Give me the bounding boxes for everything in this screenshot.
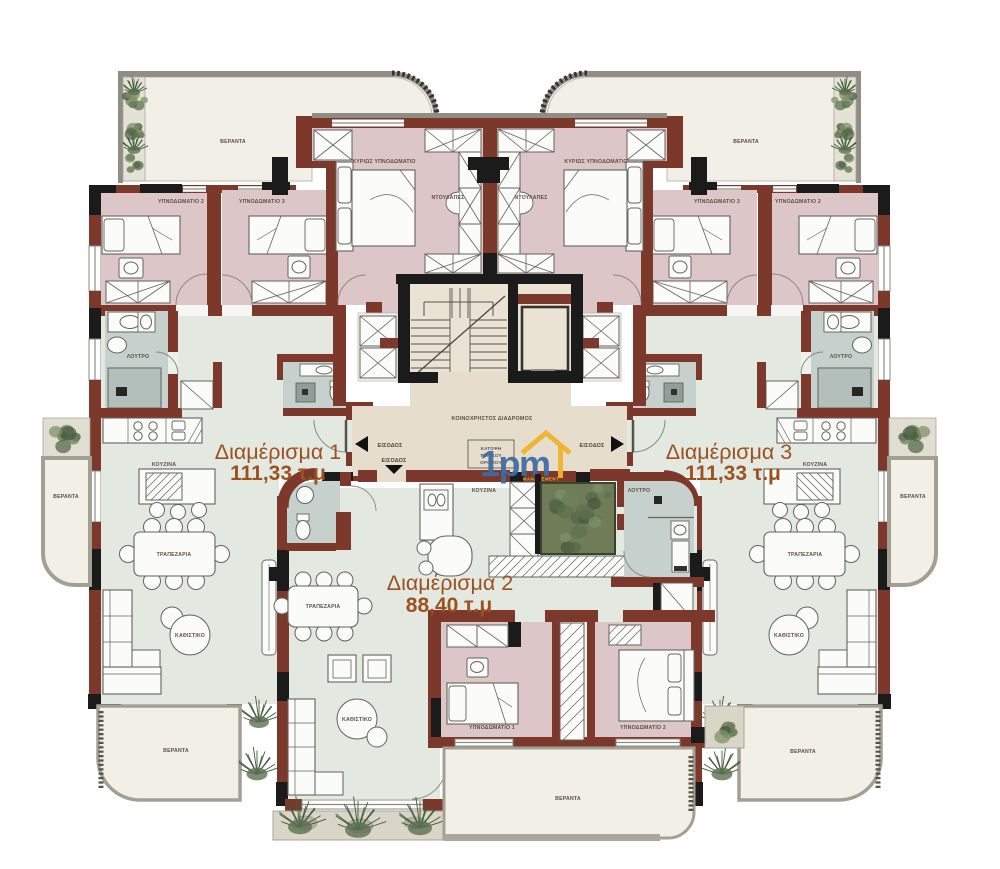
svg-text:ΚΟΙΝΟΧΡΗΣΤΟΣ ΔΙΑΔΡΟΜΟΣ: ΚΟΙΝΟΧΡΗΣΤΟΣ ΔΙΑΔΡΟΜΟΣ	[452, 416, 533, 422]
svg-text:ΥΠΝΟΔΩΜΑΤΙΟ 3: ΥΠΝΟΔΩΜΑΤΙΟ 3	[239, 199, 285, 205]
svg-text:ΒΕΡΑΝΤΑ: ΒΕΡΑΝΤΑ	[163, 748, 189, 754]
svg-text:ΥΠΝΟΔΩΜΑΤΙΟ 2: ΥΠΝΟΔΩΜΑΤΙΟ 2	[158, 199, 204, 205]
svg-text:ΒΕΡΑΝΤΑ: ΒΕΡΑΝΤΑ	[220, 139, 246, 145]
svg-text:ΚΟΥΖΙΝΑ: ΚΟΥΖΙΝΑ	[472, 488, 496, 494]
svg-text:ΥΠΝΟΔΩΜΑΤΙΟ 3: ΥΠΝΟΔΩΜΑΤΙΟ 3	[694, 199, 740, 205]
svg-text:ΥΠΝΟΔΩΜΑΤΙΟ 2: ΥΠΝΟΔΩΜΑΤΙΟ 2	[620, 725, 666, 731]
svg-text:ΚΑΘΙΣΤΙΚΟ: ΚΑΘΙΣΤΙΚΟ	[175, 633, 205, 639]
svg-text:ΕΙΣΟΔΟΣ: ΕΙΣΟΔΟΣ	[378, 443, 403, 449]
svg-text:ΚΥΡΙΩΣ ΥΠΝΟΔΩΜΑΤΙΟ: ΚΥΡΙΩΣ ΥΠΝΟΔΩΜΑΤΙΟ	[564, 159, 627, 165]
svg-text:ΒΕΡΑΝΤΑ: ΒΕΡΑΝΤΑ	[900, 494, 926, 500]
svg-text:ΤΡΑΠΕΖΑΡΙΑ: ΤΡΑΠΕΖΑΡΙΑ	[788, 552, 823, 558]
svg-text:ΝΤΟΥΛΑΠΕΣ: ΝΤΟΥΛΑΠΕΣ	[514, 195, 547, 201]
svg-text:ΚΥΡΙΩΣ ΥΠΝΟΔΩΜΑΤΙΟ: ΚΥΡΙΩΣ ΥΠΝΟΔΩΜΑΤΙΟ	[352, 159, 415, 165]
svg-text:ΝΤΟΥΛΑΠΕΣ: ΝΤΟΥΛΑΠΕΣ	[431, 195, 464, 201]
svg-text:ΒΕΡΑΝΤΑ: ΒΕΡΑΝΤΑ	[555, 796, 581, 802]
svg-text:ΥΠΝΟΔΩΜΑΤΙΟ 2: ΥΠΝΟΔΩΜΑΤΙΟ 2	[775, 199, 821, 205]
svg-text:ΒΕΡΑΝΤΑ: ΒΕΡΑΝΤΑ	[53, 494, 79, 500]
svg-text:ΒΕΡΑΝΤΑ: ΒΕΡΑΝΤΑ	[733, 139, 759, 145]
svg-text:Διαμέρισμα 1: Διαμέρισμα 1	[215, 440, 342, 464]
svg-text:ΛΟΥΤΡΟ: ΛΟΥΤΡΟ	[628, 488, 651, 494]
svg-text:ΛΟΥΤΡΟ: ΛΟΥΤΡΟ	[127, 354, 150, 360]
svg-text:ΤΡΑΠΕΖΑΡΙΑ: ΤΡΑΠΕΖΑΡΙΑ	[306, 604, 341, 610]
svg-text:Διαμέρισμα 3: Διαμέρισμα 3	[666, 440, 793, 464]
svg-text:88,40 τ.μ: 88,40 τ.μ	[406, 594, 492, 617]
svg-text:111,33 τ.μ: 111,33 τ.μ	[685, 462, 781, 485]
svg-text:ΚΑΘΙΣΤΙΚΟ: ΚΑΘΙΣΤΙΚΟ	[342, 717, 372, 723]
svg-text:ΕΙΣΟΔΟΣ: ΕΙΣΟΔΟΣ	[580, 443, 605, 449]
svg-text:111,33 τ.μ: 111,33 τ.μ	[230, 462, 326, 485]
svg-text:ΚΑΘΙΣΤΙΚΟ: ΚΑΘΙΣΤΙΚΟ	[774, 633, 804, 639]
svg-text:Διαμέρισμα 2: Διαμέρισμα 2	[387, 571, 514, 595]
svg-text:ΕΙΣΟΔΟΣ: ΕΙΣΟΔΟΣ	[382, 458, 407, 464]
svg-text:ΚΟΥΖΙΝΑ: ΚΟΥΖΙΝΑ	[152, 462, 176, 468]
svg-text:ΛΟΥΤΡΟ: ΛΟΥΤΡΟ	[830, 354, 853, 360]
svg-text:ΚΟΥΖΙΝΑ: ΚΟΥΖΙΝΑ	[803, 462, 827, 468]
svg-text:ΤΡΑΠΕΖΑΡΙΑ: ΤΡΑΠΕΖΑΡΙΑ	[157, 552, 192, 558]
svg-text:ΒΕΡΑΝΤΑ: ΒΕΡΑΝΤΑ	[790, 749, 816, 755]
svg-text:ΥΠΝΟΔΩΜΑΤΙΟ 1: ΥΠΝΟΔΩΜΑΤΙΟ 1	[469, 725, 515, 731]
